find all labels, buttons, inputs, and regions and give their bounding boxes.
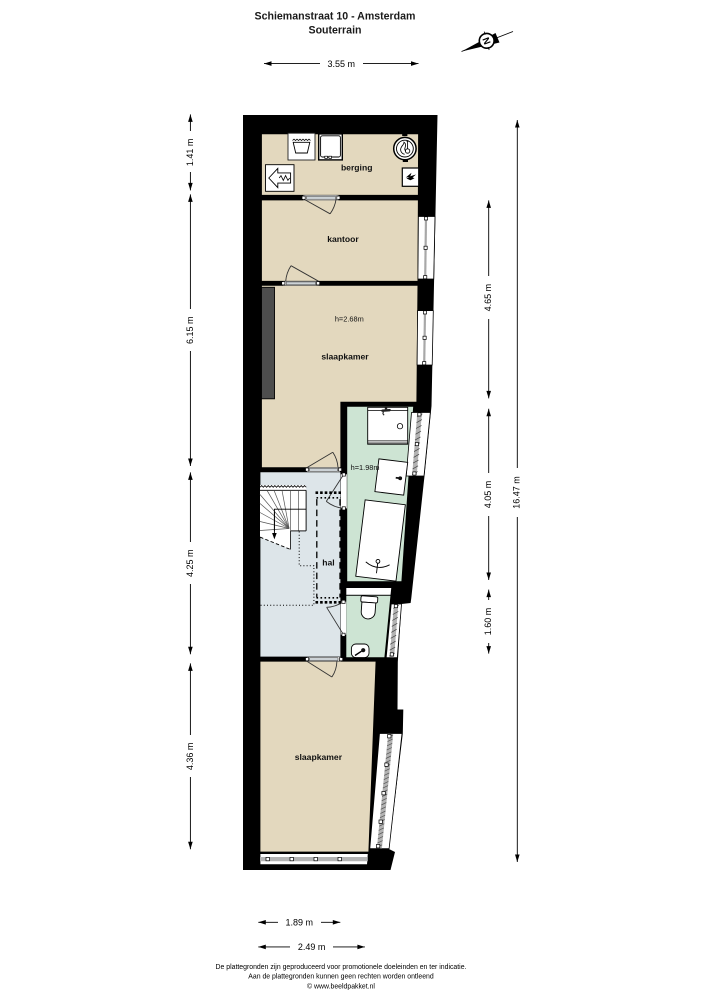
svg-text:h=1.98m: h=1.98m xyxy=(351,463,380,472)
svg-text:kantoor: kantoor xyxy=(327,234,359,244)
svg-text:2.49 m: 2.49 m xyxy=(298,942,326,952)
svg-text:© www.beeldpakket.nl: © www.beeldpakket.nl xyxy=(307,982,375,990)
svg-text:4.25 m: 4.25 m xyxy=(185,550,195,578)
svg-text:h=2.68m: h=2.68m xyxy=(335,314,364,323)
svg-text:1.89 m: 1.89 m xyxy=(286,918,314,928)
svg-text:4.65 m: 4.65 m xyxy=(483,284,493,312)
svg-text:4.36 m: 4.36 m xyxy=(185,743,195,771)
svg-text:3.55 m: 3.55 m xyxy=(328,59,356,69)
svg-text:De plattegronden zijn geproduc: De plattegronden zijn geproduceerd voor … xyxy=(216,964,467,971)
svg-text:slaapkamer: slaapkamer xyxy=(295,752,343,762)
svg-text:Souterrain: Souterrain xyxy=(309,25,362,37)
svg-text:hal: hal xyxy=(322,558,334,568)
svg-text:16.47 m: 16.47 m xyxy=(512,476,522,509)
svg-text:1.41 m: 1.41 m xyxy=(185,139,195,167)
svg-text:Schiemanstraat 10 - Amsterdam: Schiemanstraat 10 - Amsterdam xyxy=(255,11,416,23)
svg-text:Aan de plattegronden kunnen ge: Aan de plattegronden kunnen geen rechten… xyxy=(248,974,434,981)
svg-text:berging: berging xyxy=(341,162,373,172)
svg-text:1.60 m: 1.60 m xyxy=(483,608,493,636)
svg-text:slaapkamer: slaapkamer xyxy=(321,352,369,362)
svg-text:6.15 m: 6.15 m xyxy=(185,316,195,344)
svg-text:4.05 m: 4.05 m xyxy=(483,481,493,509)
